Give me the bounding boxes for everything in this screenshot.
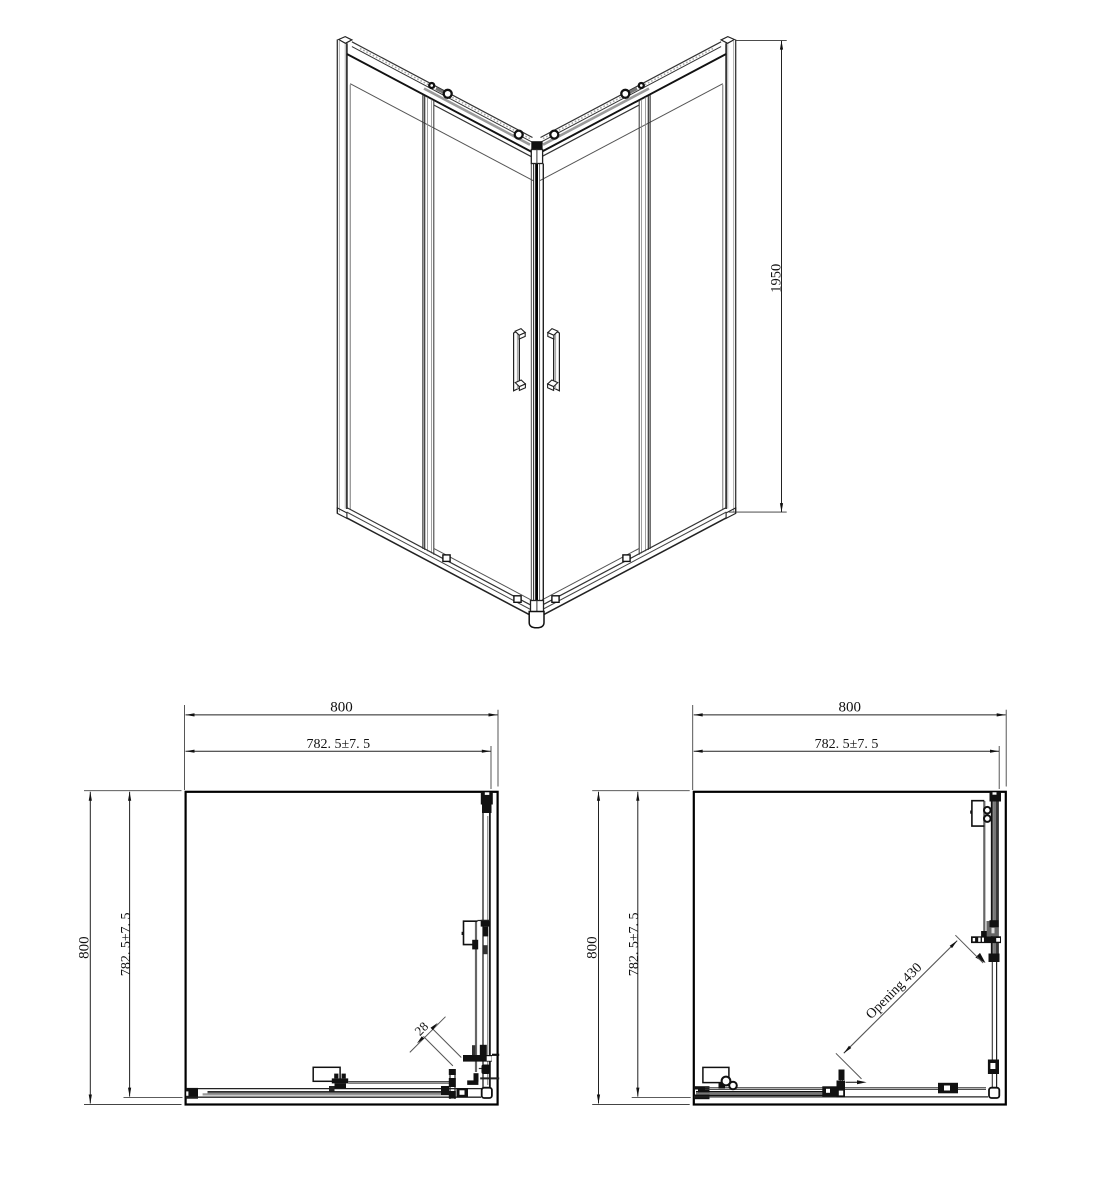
svg-text:800: 800 xyxy=(330,700,353,716)
svg-text:800: 800 xyxy=(838,700,861,716)
svg-text:782. 5±7. 5: 782. 5±7. 5 xyxy=(306,737,370,752)
svg-text:1950: 1950 xyxy=(769,264,785,293)
svg-text:782. 5±7. 5: 782. 5±7. 5 xyxy=(119,912,134,976)
svg-text:800: 800 xyxy=(76,936,92,959)
svg-text:782. 5±7. 5: 782. 5±7. 5 xyxy=(627,912,642,976)
svg-text:800: 800 xyxy=(585,936,601,959)
svg-text:782. 5±7. 5: 782. 5±7. 5 xyxy=(815,737,879,752)
